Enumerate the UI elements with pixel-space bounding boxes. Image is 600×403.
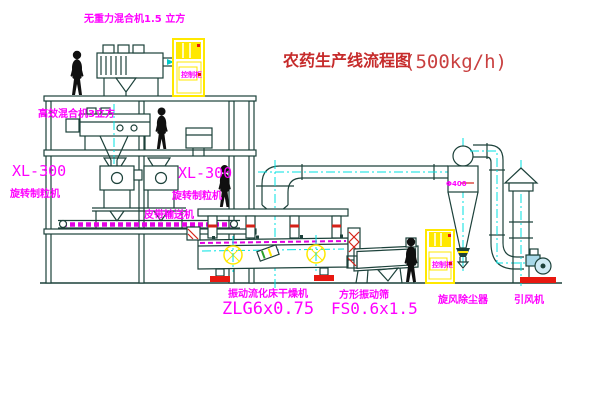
worker-figure-2 (155, 108, 167, 150)
fluid-bed-dryer (187, 209, 360, 282)
granulator-unit-left (100, 158, 142, 208)
granulator-left-name-label: 旋转制粒机 (9, 187, 60, 200)
induced-draft-fan (520, 249, 556, 283)
granulator-left-model-label: XL-300 (12, 162, 66, 180)
belt-conveyor-label: 皮带输送机 (143, 208, 194, 221)
fan-name-label: 引风机 (514, 293, 544, 306)
dryer-model-label: ZLG6x0.75 (222, 299, 314, 319)
dryer-inlet-box (187, 227, 200, 240)
cyclone-name-label: 旋风除尘器 (437, 293, 489, 306)
screen-model-label: FS0.6x1.5 (331, 299, 418, 318)
top-mixer-label: 无重力混合机1.5 立方 (83, 12, 185, 25)
exhaust-stack (505, 160, 537, 286)
diagram-title: 农药生产线流程图 (282, 51, 411, 70)
control-cabinet-top: 控制柜 (173, 39, 204, 96)
control-cabinet-right: 控制柜 (426, 230, 454, 283)
diagram-title-capacity: (500kg/h) (404, 51, 507, 73)
mid-mixer-label: 高效混合机3立方 (38, 107, 115, 120)
diagram-canvas: 控制柜 (0, 0, 600, 403)
granulator-right-name-label: 旋转制粒机 (171, 189, 222, 202)
process-flow-diagram: 控制柜 (0, 0, 600, 403)
top-mixer-machine (97, 45, 176, 96)
granulator-right-model-label: XL-300 (178, 164, 232, 182)
worker-figure-1 (71, 51, 84, 95)
cyclone-mark-label: Φ400 (446, 180, 467, 188)
